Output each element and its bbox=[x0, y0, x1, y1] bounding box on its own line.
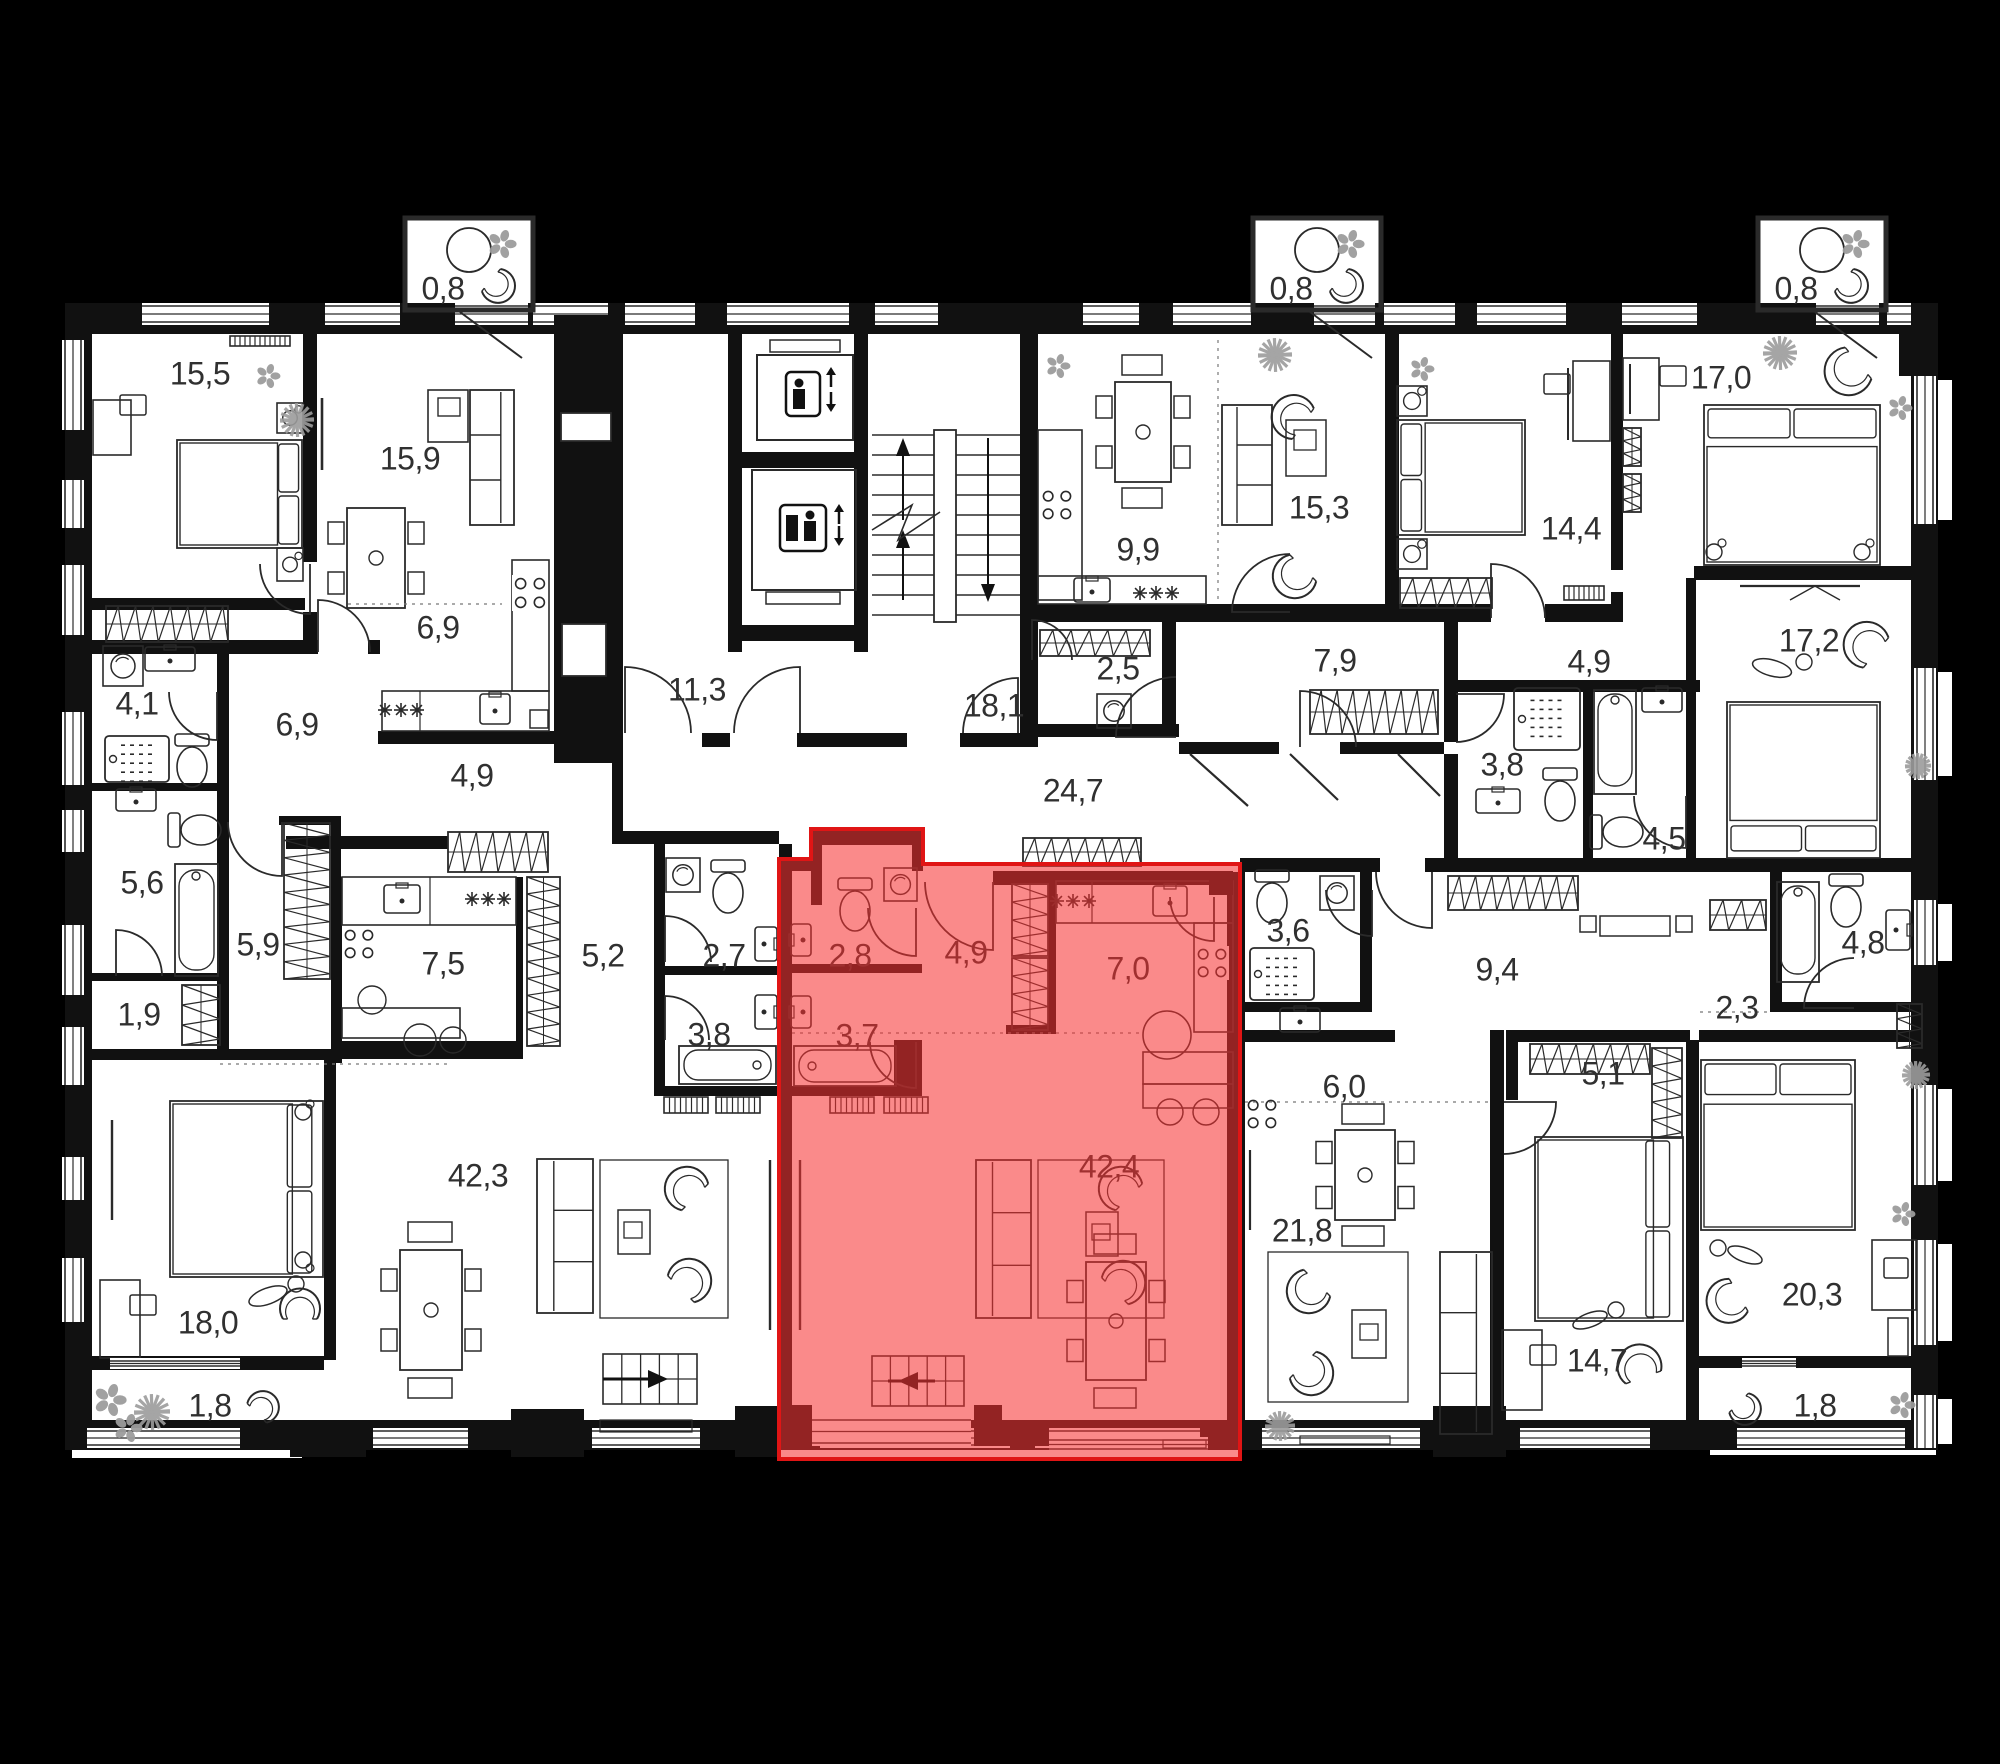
svg-text:4,1: 4,1 bbox=[116, 686, 159, 722]
svg-text:3,8: 3,8 bbox=[1481, 747, 1524, 783]
svg-text:42,3: 42,3 bbox=[448, 1158, 508, 1194]
svg-text:11,3: 11,3 bbox=[668, 672, 726, 708]
svg-text:0,8: 0,8 bbox=[1270, 271, 1313, 307]
svg-text:9,9: 9,9 bbox=[1117, 532, 1160, 568]
svg-text:0,8: 0,8 bbox=[1775, 271, 1818, 307]
svg-text:18,1: 18,1 bbox=[964, 688, 1024, 724]
svg-text:1,8: 1,8 bbox=[1794, 1388, 1837, 1424]
svg-text:3,6: 3,6 bbox=[1267, 913, 1310, 949]
svg-text:4,8: 4,8 bbox=[1842, 925, 1885, 961]
svg-text:6,9: 6,9 bbox=[276, 707, 319, 743]
svg-text:5,6: 5,6 bbox=[121, 865, 164, 901]
svg-text:20,3: 20,3 bbox=[1782, 1277, 1842, 1313]
svg-text:24,7: 24,7 bbox=[1043, 773, 1103, 809]
svg-text:0,8: 0,8 bbox=[422, 271, 465, 307]
svg-text:3,8: 3,8 bbox=[688, 1017, 731, 1053]
svg-text:4,9: 4,9 bbox=[451, 758, 494, 794]
svg-text:6,0: 6,0 bbox=[1323, 1069, 1366, 1105]
svg-text:1,9: 1,9 bbox=[118, 997, 161, 1033]
svg-text:18,0: 18,0 bbox=[178, 1305, 238, 1341]
svg-text:15,9: 15,9 bbox=[380, 441, 440, 477]
svg-text:4,5: 4,5 bbox=[1643, 821, 1686, 857]
svg-text:14,7: 14,7 bbox=[1567, 1343, 1627, 1379]
svg-text:2,5: 2,5 bbox=[1097, 651, 1140, 687]
svg-text:21,8: 21,8 bbox=[1272, 1213, 1332, 1249]
svg-text:5,2: 5,2 bbox=[582, 938, 625, 974]
svg-text:15,3: 15,3 bbox=[1289, 490, 1349, 526]
svg-text:6,9: 6,9 bbox=[417, 610, 460, 646]
svg-text:5,9: 5,9 bbox=[237, 927, 280, 963]
svg-text:14,4: 14,4 bbox=[1541, 511, 1601, 547]
svg-text:2,3: 2,3 bbox=[1716, 990, 1759, 1026]
svg-text:9,4: 9,4 bbox=[1476, 952, 1519, 988]
svg-text:17,0: 17,0 bbox=[1691, 360, 1751, 396]
svg-text:15,5: 15,5 bbox=[170, 356, 230, 392]
svg-text:4,9: 4,9 bbox=[1568, 644, 1611, 680]
svg-text:1,8: 1,8 bbox=[189, 1388, 232, 1424]
svg-text:7,5: 7,5 bbox=[422, 946, 465, 982]
svg-text:7,9: 7,9 bbox=[1314, 643, 1357, 679]
svg-text:5,1: 5,1 bbox=[1582, 1056, 1625, 1092]
svg-text:2,7: 2,7 bbox=[703, 938, 746, 974]
svg-text:17,2: 17,2 bbox=[1779, 623, 1839, 659]
